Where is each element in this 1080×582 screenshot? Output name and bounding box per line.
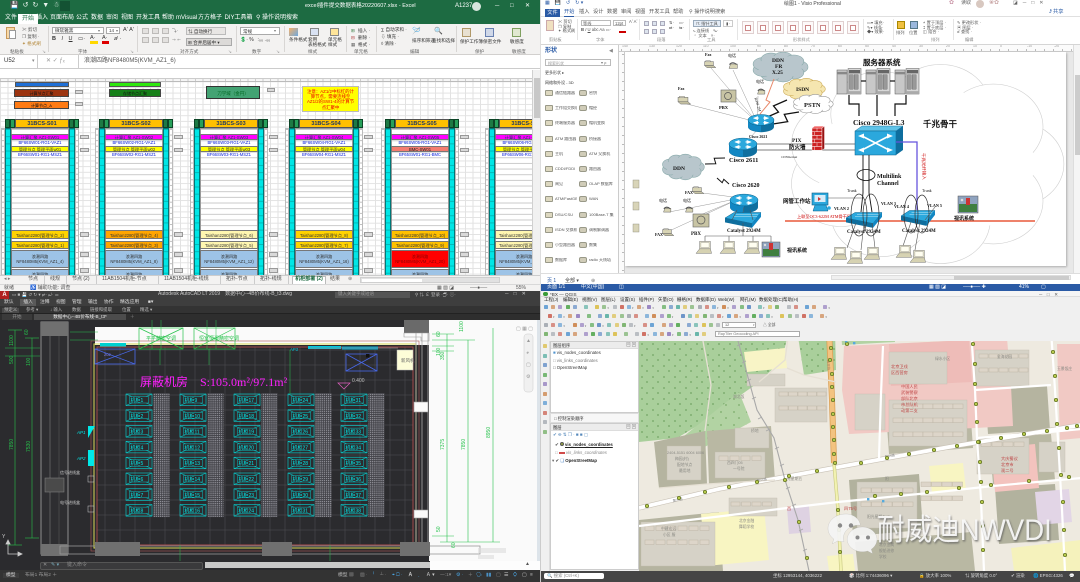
svg-text:Cisco 2948G-L3: Cisco 2948G-L3 xyxy=(853,118,905,127)
svg-text:市总队机: 市总队机 xyxy=(901,401,919,408)
svg-text:绿水小区: 绿水小区 xyxy=(935,356,950,361)
svg-text:最用地: 最用地 xyxy=(679,468,691,473)
svg-text:桥地: 桥地 xyxy=(751,428,759,433)
svg-text:机柜8: 机柜8 xyxy=(131,508,144,515)
svg-text:机柜24: 机柜24 xyxy=(293,397,309,404)
svg-text:机柜30: 机柜30 xyxy=(293,492,309,499)
svg-text:Catalyst 2924M: Catalyst 2924M xyxy=(727,229,761,234)
svg-text:350: 350 xyxy=(440,351,446,360)
svg-text:机柜18: 机柜18 xyxy=(239,413,255,420)
svg-text:机柜35: 机柜35 xyxy=(346,460,362,467)
svg-text:电话: 电话 xyxy=(756,78,764,84)
svg-text:中国人民: 中国人民 xyxy=(901,383,918,390)
svg-text:0.400: 0.400 xyxy=(352,378,365,384)
svg-text:2404-5151 6004 6006: 2404-5151 6004 6006 xyxy=(667,451,704,455)
svg-text:10 Ethernet: 10 Ethernet xyxy=(781,155,797,159)
svg-text:北京卫戍: 北京卫戍 xyxy=(891,363,908,370)
svg-text:1100: 1100 xyxy=(9,335,15,346)
svg-text:机柜4: 机柜4 xyxy=(131,444,144,451)
svg-text:玉景饭庄: 玉景饭庄 xyxy=(1057,366,1072,371)
svg-text:千兆骨干: 千兆骨干 xyxy=(923,119,958,129)
svg-text:AP3: AP3 xyxy=(289,347,299,352)
svg-text:Cisco 2620: Cisco 2620 xyxy=(732,183,760,189)
svg-text:中建宏远: 中建宏远 xyxy=(661,526,676,531)
svg-text:50: 50 xyxy=(436,526,442,532)
svg-text:机柜6: 机柜6 xyxy=(131,476,144,483)
svg-text:机柜24: 机柜24 xyxy=(239,508,255,515)
svg-text:大庆蜀议: 大庆蜀议 xyxy=(1001,455,1019,462)
svg-text:AP1: AP1 xyxy=(76,430,86,435)
svg-text:视讯系统: 视讯系统 xyxy=(954,215,974,222)
svg-text:信号进线盒: 信号进线盒 xyxy=(60,469,80,475)
svg-text:舞蹈学校: 舞蹈学校 xyxy=(739,524,754,529)
svg-text:机柜14: 机柜14 xyxy=(185,476,201,483)
svg-text:新风机: 新风机 xyxy=(401,357,415,364)
svg-text:机柜34: 机柜34 xyxy=(346,444,362,451)
svg-text:VLAN 2: VLAN 2 xyxy=(834,206,849,211)
svg-text:服务器系统: 服务器系统 xyxy=(863,57,901,67)
svg-text:7850: 7850 xyxy=(461,439,467,450)
svg-text:机柜33: 机柜33 xyxy=(346,429,362,436)
svg-text:FAX: FAX xyxy=(685,190,693,195)
svg-text:机柜5: 机柜5 xyxy=(131,460,144,467)
svg-text:500: 500 xyxy=(9,355,15,364)
svg-text:防火墙: 防火墙 xyxy=(789,143,806,151)
svg-text:屏蔽机房 S:105.0m²/97.1m²: 屏蔽机房 S:105.0m²/97.1m² xyxy=(140,374,288,389)
svg-text:VLAN 4: VLAN 4 xyxy=(894,204,910,209)
svg-text:▢ ▦ ▢: ▢ ▦ ▢ xyxy=(516,326,533,332)
svg-text:FAX: FAX xyxy=(655,232,663,237)
svg-text:电话: 电话 xyxy=(683,197,691,203)
svg-text:机柜21: 机柜21 xyxy=(239,460,255,467)
svg-text:机柜16: 机柜16 xyxy=(185,508,201,515)
svg-text:Fax: Fax xyxy=(678,86,684,91)
svg-text:7530: 7530 xyxy=(26,441,32,452)
svg-text:Fax: Fax xyxy=(705,52,711,57)
svg-text:DDN: DDN xyxy=(673,166,685,172)
svg-text:机柜26: 机柜26 xyxy=(293,429,309,436)
svg-text:电话: 电话 xyxy=(728,52,736,58)
svg-text:100: 100 xyxy=(26,357,32,366)
svg-text:VLAN 5: VLAN 5 xyxy=(927,203,942,208)
svg-text:X.25: X.25 xyxy=(772,70,783,76)
svg-text:机柜11: 机柜11 xyxy=(185,429,200,436)
svg-text:机柜17: 机柜17 xyxy=(239,397,255,404)
svg-text:机柜25: 机柜25 xyxy=(293,413,309,420)
svg-text:配地节点: 配地节点 xyxy=(677,462,692,467)
svg-text:小区 服: 小区 服 xyxy=(663,532,676,537)
svg-text:1100: 1100 xyxy=(459,321,465,332)
svg-text:60: 60 xyxy=(451,542,457,548)
svg-text:Y: Y xyxy=(2,534,6,540)
svg-text:8950: 8950 xyxy=(486,427,492,438)
svg-text:全海花园: 全海花园 xyxy=(997,354,1012,359)
svg-text:部队北京: 部队北京 xyxy=(901,395,918,402)
svg-text:机柜7: 机柜7 xyxy=(131,492,144,499)
svg-text:网管工作站: 网管工作站 xyxy=(783,197,811,205)
svg-text:机柜29: 机柜29 xyxy=(293,476,309,483)
svg-text:Channel: Channel xyxy=(877,181,899,187)
svg-text:电号进线盒: 电号进线盒 xyxy=(60,499,80,505)
svg-text:梅园(村): 梅园(村) xyxy=(675,456,690,461)
svg-text:7850: 7850 xyxy=(9,439,15,450)
svg-text:机柜22: 机柜22 xyxy=(239,476,255,483)
svg-text:机柜9: 机柜9 xyxy=(185,397,198,404)
svg-text:◕: ◕ xyxy=(526,350,529,356)
svg-text:一号院: 一号院 xyxy=(733,466,745,471)
svg-text:202: 202 xyxy=(104,352,111,357)
svg-text:机柜27: 机柜27 xyxy=(293,444,309,451)
svg-text:西四门05: 西四门05 xyxy=(727,460,743,465)
svg-text:区西营房: 区西营房 xyxy=(891,369,908,376)
svg-text:机柜2: 机柜2 xyxy=(131,413,144,420)
svg-text:湖北饭: 湖北饭 xyxy=(733,394,745,399)
svg-text:▢: ▢ xyxy=(526,362,531,368)
svg-text:机柜28: 机柜28 xyxy=(293,460,309,467)
svg-text:上联至OC3-622M ATM骨干网: 上联至OC3-622M ATM骨干网 xyxy=(797,213,851,220)
svg-text:PBX: PBX xyxy=(719,105,729,110)
svg-text:机柜32: 机柜32 xyxy=(346,413,362,420)
svg-text:PBX: PBX xyxy=(691,232,701,237)
svg-text:机柜31: 机柜31 xyxy=(293,508,309,515)
svg-text:60: 60 xyxy=(436,331,442,337)
svg-text:北京金融: 北京金融 xyxy=(739,518,754,523)
svg-text:机柜19: 机柜19 xyxy=(239,429,255,436)
svg-text:Multilink: Multilink xyxy=(877,174,902,180)
svg-text:机柜20: 机柜20 xyxy=(239,444,255,451)
svg-text:Cisco 2621: Cisco 2621 xyxy=(749,134,767,139)
svg-text:R4W-2M: R4W-2M xyxy=(753,97,761,112)
svg-text:视讯系统: 视讯系统 xyxy=(787,247,807,254)
svg-text:AP2: AP2 xyxy=(76,456,86,461)
svg-text:机柜37: 机柜37 xyxy=(346,492,362,499)
svg-text:PIX: PIX xyxy=(792,138,802,144)
svg-text:恒室恒湿精密空调: 恒室恒湿精密空调 xyxy=(199,335,239,342)
svg-text:机柜13: 机柜13 xyxy=(185,460,201,467)
svg-text:机柜23: 机柜23 xyxy=(239,492,255,499)
svg-text:机柜15: 机柜15 xyxy=(185,492,201,499)
svg-text:机柜36: 机柜36 xyxy=(346,476,362,483)
svg-text:7375: 7375 xyxy=(440,439,446,450)
svg-text:⚙: ⚙ xyxy=(526,374,531,380)
svg-text:电话: 电话 xyxy=(659,197,667,203)
svg-text:机柜10: 机柜10 xyxy=(185,413,201,420)
svg-text:机柜38: 机柜38 xyxy=(346,508,362,515)
svg-text:Trunk: Trunk xyxy=(922,188,932,193)
svg-text:北京市: 北京市 xyxy=(1001,461,1014,468)
svg-text:▲: ▲ xyxy=(526,338,531,344)
svg-text:60: 60 xyxy=(24,329,30,335)
svg-text:Cisco 2611: Cisco 2611 xyxy=(729,157,758,164)
svg-text:机柜3: 机柜3 xyxy=(131,429,144,436)
svg-text:ISDN: ISDN xyxy=(796,87,809,93)
svg-text:PSTN: PSTN xyxy=(804,102,821,109)
svg-text:动第二支: 动第二支 xyxy=(901,407,919,414)
svg-text:Trunk: Trunk xyxy=(847,188,857,193)
svg-text:武装警察: 武装警察 xyxy=(901,389,919,396)
svg-text:机柜12: 机柜12 xyxy=(185,444,201,451)
svg-text:机柜1: 机柜1 xyxy=(131,397,144,404)
svg-text:机柜31: 机柜31 xyxy=(346,397,362,404)
